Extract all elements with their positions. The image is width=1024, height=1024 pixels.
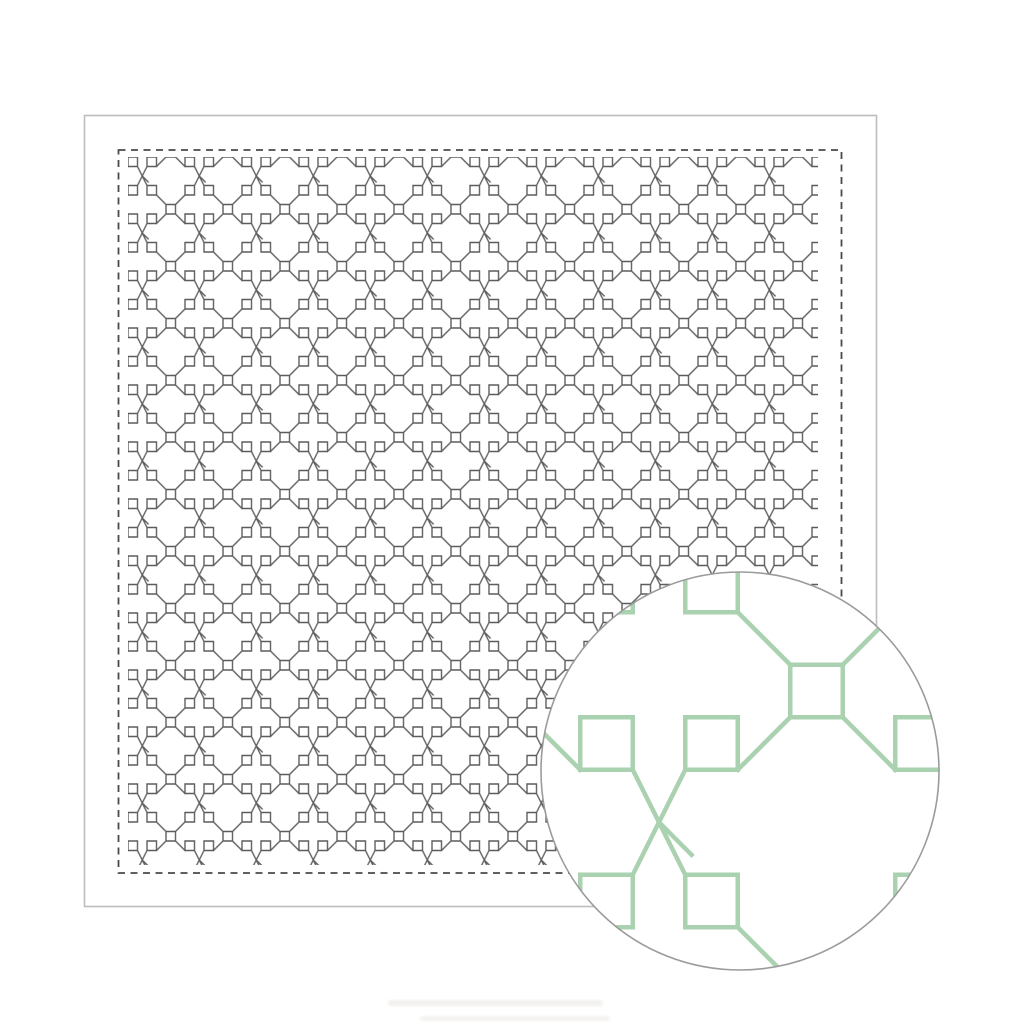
watermark-smudge-line-1 — [388, 1000, 603, 1006]
sashiko-scene — [0, 0, 1024, 1024]
faint-watermark — [388, 1000, 610, 1021]
watermark-smudge-line-2 — [420, 1016, 610, 1021]
product-photo — [0, 0, 1024, 1024]
